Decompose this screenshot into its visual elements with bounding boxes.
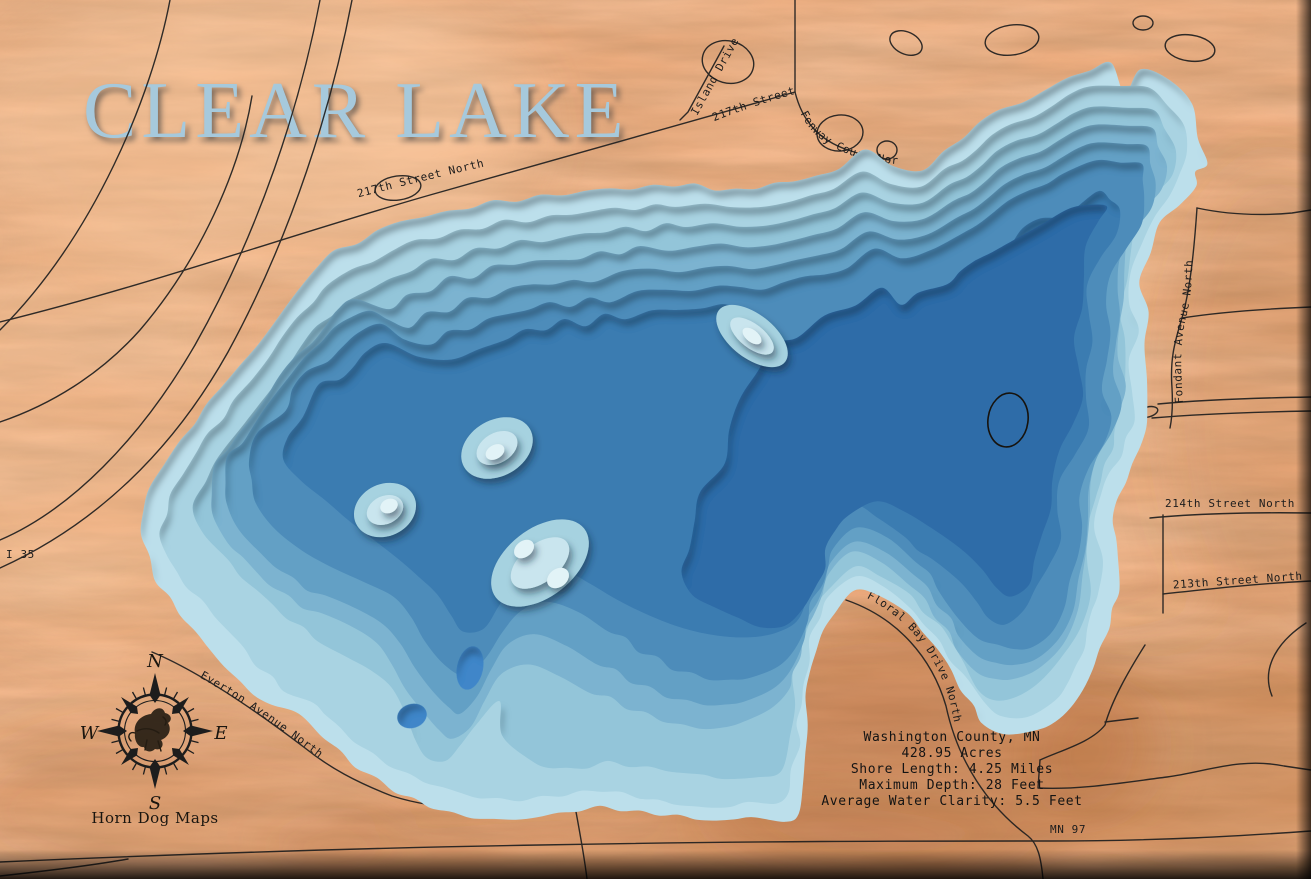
stat-water-clarity: Average Water Clarity: 5.5 Feet xyxy=(821,794,1082,809)
compass-north: N xyxy=(146,651,164,672)
map-canvas: CLEAR LAKE xyxy=(0,0,1311,879)
stat-max-depth: Maximum Depth: 28 Feet xyxy=(859,778,1044,793)
maker-credit: Horn Dog Maps xyxy=(91,809,218,827)
stat-acres: 428.95 Acres xyxy=(901,746,1002,761)
board-edge-bottom xyxy=(0,850,1311,879)
lake-title: CLEAR LAKE xyxy=(83,67,629,155)
compass-west: W xyxy=(80,723,100,744)
compass-east: E xyxy=(213,723,227,744)
label-i35: I 35 xyxy=(6,548,35,561)
stat-shore-length: Shore Length: 4.25 Miles xyxy=(851,762,1053,777)
label-214th-street: 214th Street North xyxy=(1165,497,1295,510)
wooden-lake-map: CLEAR LAKE xyxy=(0,0,1311,879)
board-edge-right xyxy=(1296,0,1311,879)
label-mn97: MN 97 xyxy=(1050,823,1086,836)
